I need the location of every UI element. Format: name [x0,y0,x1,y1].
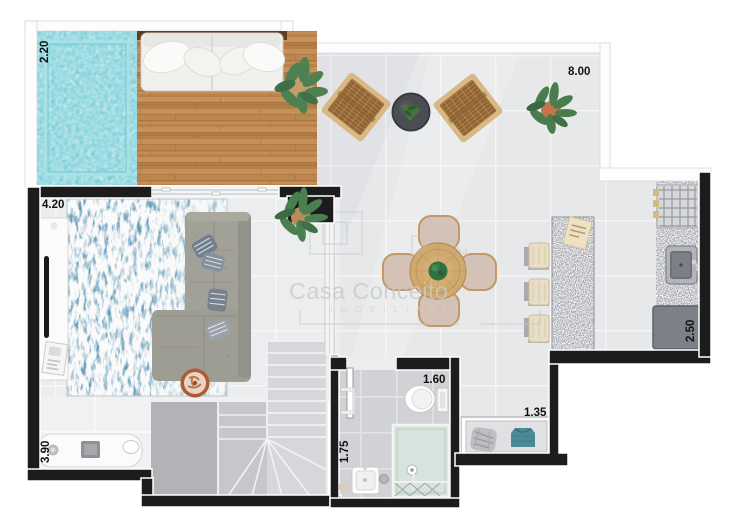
svg-text:8.00: 8.00 [568,66,590,78]
svg-text:4.20: 4.20 [42,199,64,211]
svg-text:1.60: 1.60 [423,374,445,386]
svg-text:1.35: 1.35 [524,407,547,419]
svg-text:I M O B I L I A R I A: I M O B I L I A R I A [330,305,462,314]
svg-text:1.75: 1.75 [339,440,351,463]
svg-text:2.50: 2.50 [685,320,697,342]
svg-text:3.90: 3.90 [40,441,52,463]
svg-text:2.20: 2.20 [39,41,51,63]
svg-text:Casa Conceito: Casa Conceito [289,278,448,304]
